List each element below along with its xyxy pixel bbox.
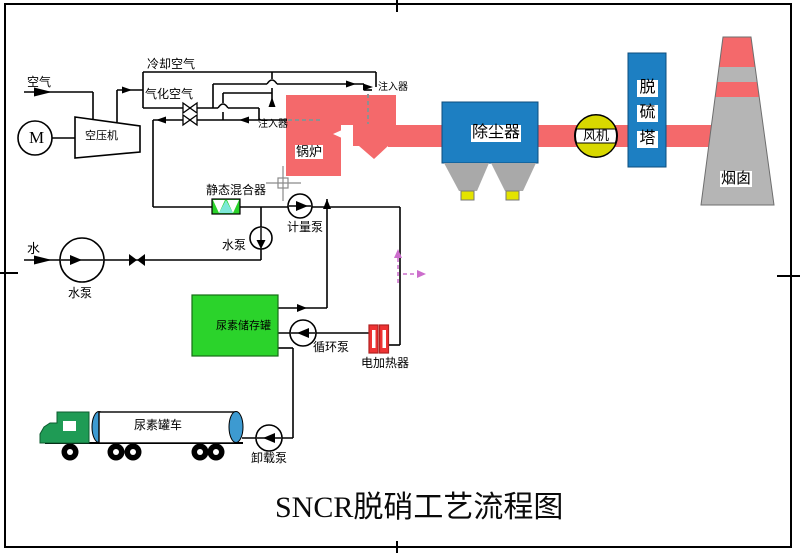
static-mixer [212, 199, 240, 214]
dust-collector [442, 102, 538, 200]
tower-label-char-2: 硫 [637, 105, 658, 122]
diagram-title: SNCR脱硝工艺流程图 [275, 492, 555, 524]
sncr-process-flow-diagram: 空气 冷却空气 气化空气 空压机 M 注入器 注入器 锅炉 除尘器 风机 脱 硫… [0, 0, 800, 553]
hopper-outlet-left [461, 191, 474, 200]
water-flow-arrow [34, 256, 52, 265]
booster-pump-label: 水泵 [222, 239, 246, 252]
static-mixer-label: 静态混合器 [206, 184, 266, 197]
cad-cursor-arrows [394, 249, 426, 283]
air-label: 空气 [27, 76, 51, 89]
tower-label-char-3: 塔 [637, 131, 658, 148]
hopper-outlet-right [506, 191, 519, 200]
cooling-air-label: 冷却空气 [147, 58, 195, 71]
booster-pump [250, 227, 272, 249]
urea-truck-label: 尿素罐车 [134, 419, 182, 432]
injector-right-label: 注入器 [378, 83, 408, 94]
atomizing-air-valves [183, 103, 197, 125]
metering-pump [288, 194, 312, 218]
boiler [286, 95, 396, 176]
tank-rear-head [229, 412, 243, 443]
tower-label-char-1: 脱 [637, 80, 658, 97]
water-pump-label: 水泵 [68, 287, 92, 300]
water-line [24, 207, 261, 260]
truck-wheels [62, 444, 225, 461]
electric-heater-label: 电加热器 [361, 357, 409, 370]
water-pump [60, 238, 104, 282]
circulation-pump-label: 循环泵 [313, 341, 349, 354]
motor [18, 121, 75, 155]
motor-label: M [29, 129, 44, 147]
electric-heater [369, 325, 389, 353]
urea-tank-label: 尿素储存罐 [216, 321, 271, 333]
injector-left-label: 注入器 [258, 120, 288, 131]
truck-window [63, 421, 76, 431]
water-label: 水 [27, 242, 40, 256]
atomizing-air-label: 气化空气 [145, 88, 193, 101]
dust-collector-label: 除尘器 [471, 125, 521, 142]
chimney-label: 烟囱 [720, 171, 752, 187]
unloading-pump [256, 425, 282, 451]
metering-pump-label: 计量泵 [287, 221, 323, 234]
water-valve [129, 254, 145, 266]
boiler-label: 锅炉 [295, 145, 323, 159]
unloading-pump-label: 卸载泵 [251, 452, 287, 465]
compressor-label: 空压机 [85, 131, 118, 143]
fan-label: 风机 [583, 129, 609, 143]
